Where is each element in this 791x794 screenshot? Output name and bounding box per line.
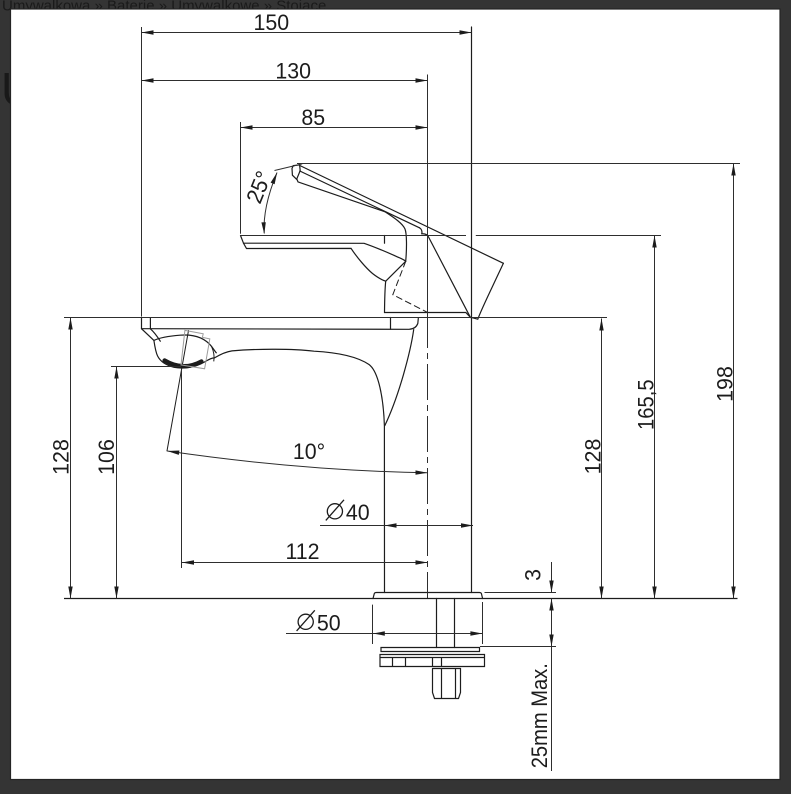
svg-text:165,5: 165,5 xyxy=(633,379,658,430)
svg-text:130: 130 xyxy=(275,58,311,84)
svg-text:25mm Max.: 25mm Max. xyxy=(527,663,552,768)
svg-text:150: 150 xyxy=(253,9,289,35)
svg-text:10°: 10° xyxy=(293,438,325,464)
svg-text:128: 128 xyxy=(580,439,606,475)
svg-text:106: 106 xyxy=(94,439,120,475)
svg-text:50: 50 xyxy=(317,610,341,636)
svg-text:85: 85 xyxy=(301,105,325,131)
svg-text:3: 3 xyxy=(520,569,546,581)
svg-text:198: 198 xyxy=(712,366,738,402)
svg-text:40: 40 xyxy=(346,499,370,525)
svg-text:112: 112 xyxy=(285,538,319,564)
svg-text:128: 128 xyxy=(48,439,74,475)
